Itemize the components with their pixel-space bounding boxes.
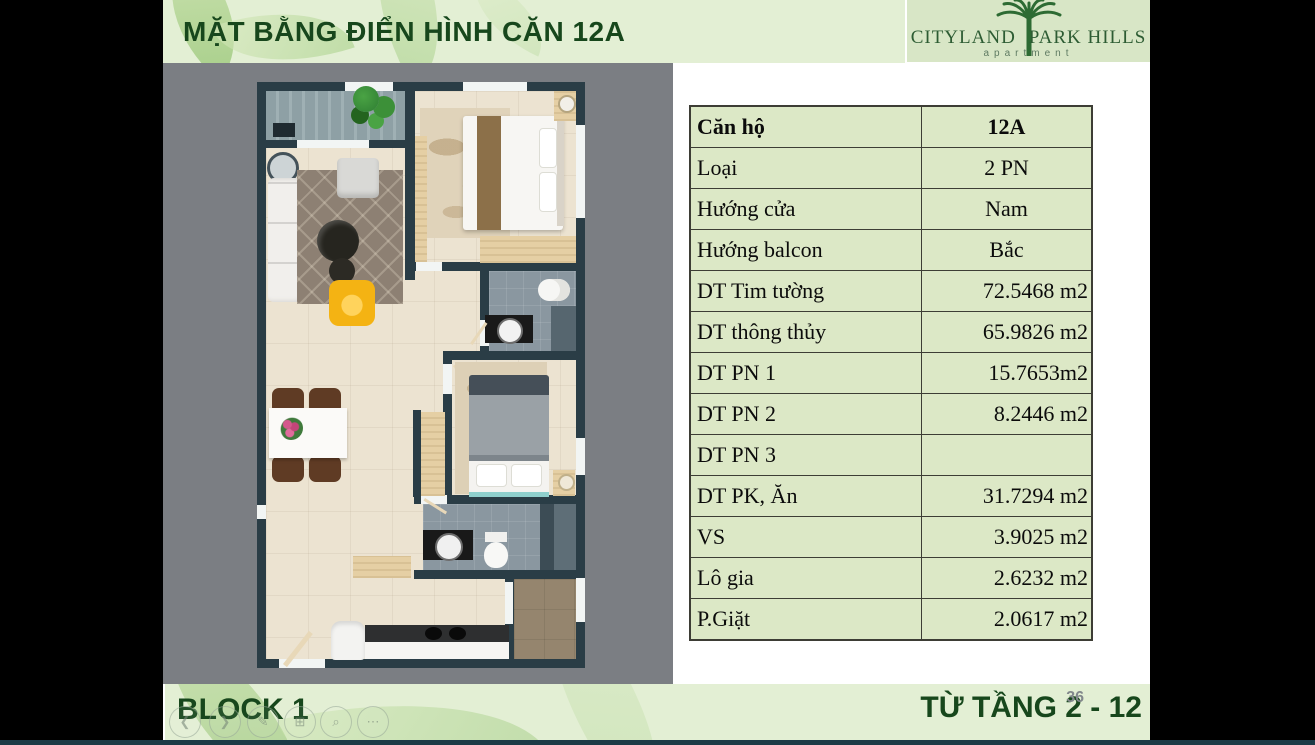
window xyxy=(576,438,585,475)
pen-icon: ✎ xyxy=(258,714,269,729)
shower-area xyxy=(554,504,576,570)
toilet-bowl xyxy=(484,542,508,568)
more-icon: ⋯ xyxy=(367,714,380,729)
previous-icon: ❮ xyxy=(180,714,191,729)
table-row: DT PN 1 15.7653m2 xyxy=(690,353,1092,394)
stove-burner xyxy=(449,627,466,640)
sink xyxy=(435,533,463,561)
window xyxy=(257,505,266,519)
bedroom1-door xyxy=(416,262,442,271)
row-label: Căn hộ xyxy=(690,106,922,148)
sink xyxy=(497,318,523,344)
bed2-headboard xyxy=(469,375,549,395)
desk xyxy=(480,236,576,263)
bedroom2-door xyxy=(443,364,452,394)
shower-area xyxy=(551,306,576,351)
row-label: P.Giặt xyxy=(690,599,922,641)
bed2-pillow xyxy=(476,464,507,487)
toilet xyxy=(538,279,570,301)
window xyxy=(463,82,527,91)
bed2-footer-strip xyxy=(469,492,549,497)
stove-burner xyxy=(425,627,442,640)
row-label: Lô gia xyxy=(690,558,922,599)
row-value: Bắc xyxy=(922,230,1093,271)
row-label: Hướng balcon xyxy=(690,230,922,271)
table-row: Căn hộ 12A xyxy=(690,106,1092,148)
table-row: P.Giặt 2.0617 m2 xyxy=(690,599,1092,641)
footer-bar: BLOCK 1 ❮ ❯ ✎ ⊞ ⌕ ⋯ TỪ TẦNG 2 - 12 36 xyxy=(163,684,1150,740)
row-label: Loại xyxy=(690,148,922,189)
row-value: 15.7653m2 xyxy=(922,353,1093,394)
kitchen-bench xyxy=(353,556,411,578)
row-value: 2.0617 m2 xyxy=(922,599,1093,641)
row-label: Hướng cửa xyxy=(690,189,922,230)
table-row: DT Tim tường 72.5468 m2 xyxy=(690,271,1092,312)
bottom-strip xyxy=(0,740,1315,745)
wall xyxy=(405,91,415,280)
page-title: MẶT BẰNG ĐIỂN HÌNH CĂN 12A xyxy=(183,0,625,63)
row-value: Nam xyxy=(922,189,1093,230)
brand-name: CITYLAND PARK HILLS xyxy=(907,27,1150,49)
row-value: 72.5468 m2 xyxy=(922,271,1093,312)
row-label: DT PK, Ăn xyxy=(690,476,922,517)
next-icon: ❯ xyxy=(220,714,231,729)
slide-number: 36 xyxy=(1066,689,1084,707)
armchair-yellow xyxy=(329,280,375,326)
row-label: DT PN 3 xyxy=(690,435,922,476)
bed1-pillow xyxy=(539,128,557,168)
unit-spec-table: Căn hộ 12A Loại 2 PN Hướng cửa Nam Hướng… xyxy=(689,105,1093,641)
row-label: DT Tim tường xyxy=(690,271,922,312)
nav-all-slides-button[interactable]: ⊞ xyxy=(284,706,316,738)
floor-plan xyxy=(257,82,585,668)
floors-label: TỪ TẦNG 2 - 12 xyxy=(920,691,1142,725)
row-label: VS xyxy=(690,517,922,558)
coffee-table xyxy=(317,220,359,262)
leaf-decoration xyxy=(277,684,552,740)
potted-plant xyxy=(353,86,379,112)
candle xyxy=(558,474,575,491)
nav-more-button[interactable]: ⋯ xyxy=(357,706,389,738)
kitchen-counter xyxy=(365,642,509,659)
flower-vase xyxy=(279,416,303,440)
row-value: 2 PN xyxy=(922,148,1093,189)
bed1-pillow xyxy=(539,172,557,212)
magnifier-icon: ⌕ xyxy=(332,714,339,729)
brand-logo: CITYLAND PARK HILLS apartment xyxy=(907,0,1150,62)
table-lamp xyxy=(558,95,576,113)
screen: { "header": { "title": "MẶT BẰNG ĐIỂN HÌ… xyxy=(0,0,1315,745)
nav-zoom-button[interactable]: ⌕ xyxy=(320,706,352,738)
window xyxy=(576,125,585,218)
row-value: 65.9826 m2 xyxy=(922,312,1093,353)
table-row: DT PN 2 8.2446 m2 xyxy=(690,394,1092,435)
wall xyxy=(413,410,421,497)
nav-next-button[interactable]: ❯ xyxy=(209,706,241,738)
bed1-headboard xyxy=(557,120,564,226)
brand-subtitle: apartment xyxy=(907,48,1150,59)
wall xyxy=(443,351,585,360)
row-value: 8.2446 m2 xyxy=(922,394,1093,435)
balcony-slider-door xyxy=(297,140,369,148)
row-value: 2.6232 m2 xyxy=(922,558,1093,599)
dining-chair xyxy=(309,456,341,482)
toilet xyxy=(485,532,507,542)
fridge xyxy=(331,621,365,660)
window xyxy=(576,578,585,622)
table-row: DT thông thủy 65.9826 m2 xyxy=(690,312,1092,353)
row-label: DT PN 1 xyxy=(690,353,922,394)
dining-chair xyxy=(272,456,304,482)
hall-cabinet xyxy=(421,412,445,496)
wall xyxy=(414,570,585,579)
table-row: Hướng cửa Nam xyxy=(690,189,1092,230)
all-slides-icon: ⊞ xyxy=(295,714,306,729)
laundry-floor xyxy=(514,579,576,659)
table-row: Loại 2 PN xyxy=(690,148,1092,189)
nav-pen-button[interactable]: ✎ xyxy=(247,706,279,738)
shower-partition xyxy=(540,504,554,570)
bed2-blanket xyxy=(469,395,549,461)
row-value: 31.7294 m2 xyxy=(922,476,1093,517)
row-label: DT thông thủy xyxy=(690,312,922,353)
bed1-runner xyxy=(477,116,501,230)
leaf-decoration xyxy=(500,684,710,740)
nav-previous-button[interactable]: ❮ xyxy=(169,706,201,738)
row-value xyxy=(922,435,1093,476)
table-row: Lô gia 2.6232 m2 xyxy=(690,558,1092,599)
ottoman xyxy=(337,158,379,198)
wardrobe xyxy=(415,136,427,262)
row-value: 12A xyxy=(922,106,1093,148)
row-label: DT PN 2 xyxy=(690,394,922,435)
bed2-pillow xyxy=(511,464,542,487)
brand-name-left: CITYLAND xyxy=(911,27,1016,49)
presentation-slide: MẶT BẰNG ĐIỂN HÌNH CĂN 12A CITYLAND PARK… xyxy=(163,0,1150,740)
laundry-door xyxy=(505,582,513,624)
table-row: DT PN 3 xyxy=(690,435,1092,476)
row-value: 3.9025 m2 xyxy=(922,517,1093,558)
table-row: VS 3.9025 m2 xyxy=(690,517,1092,558)
ac-unit xyxy=(273,123,295,137)
brand-name-right: PARK HILLS xyxy=(1029,27,1147,49)
table-row: DT PK, Ăn 31.7294 m2 xyxy=(690,476,1092,517)
title-bar: MẶT BẰNG ĐIỂN HÌNH CĂN 12A xyxy=(163,0,905,63)
table-row: Hướng balcon Bắc xyxy=(690,230,1092,271)
